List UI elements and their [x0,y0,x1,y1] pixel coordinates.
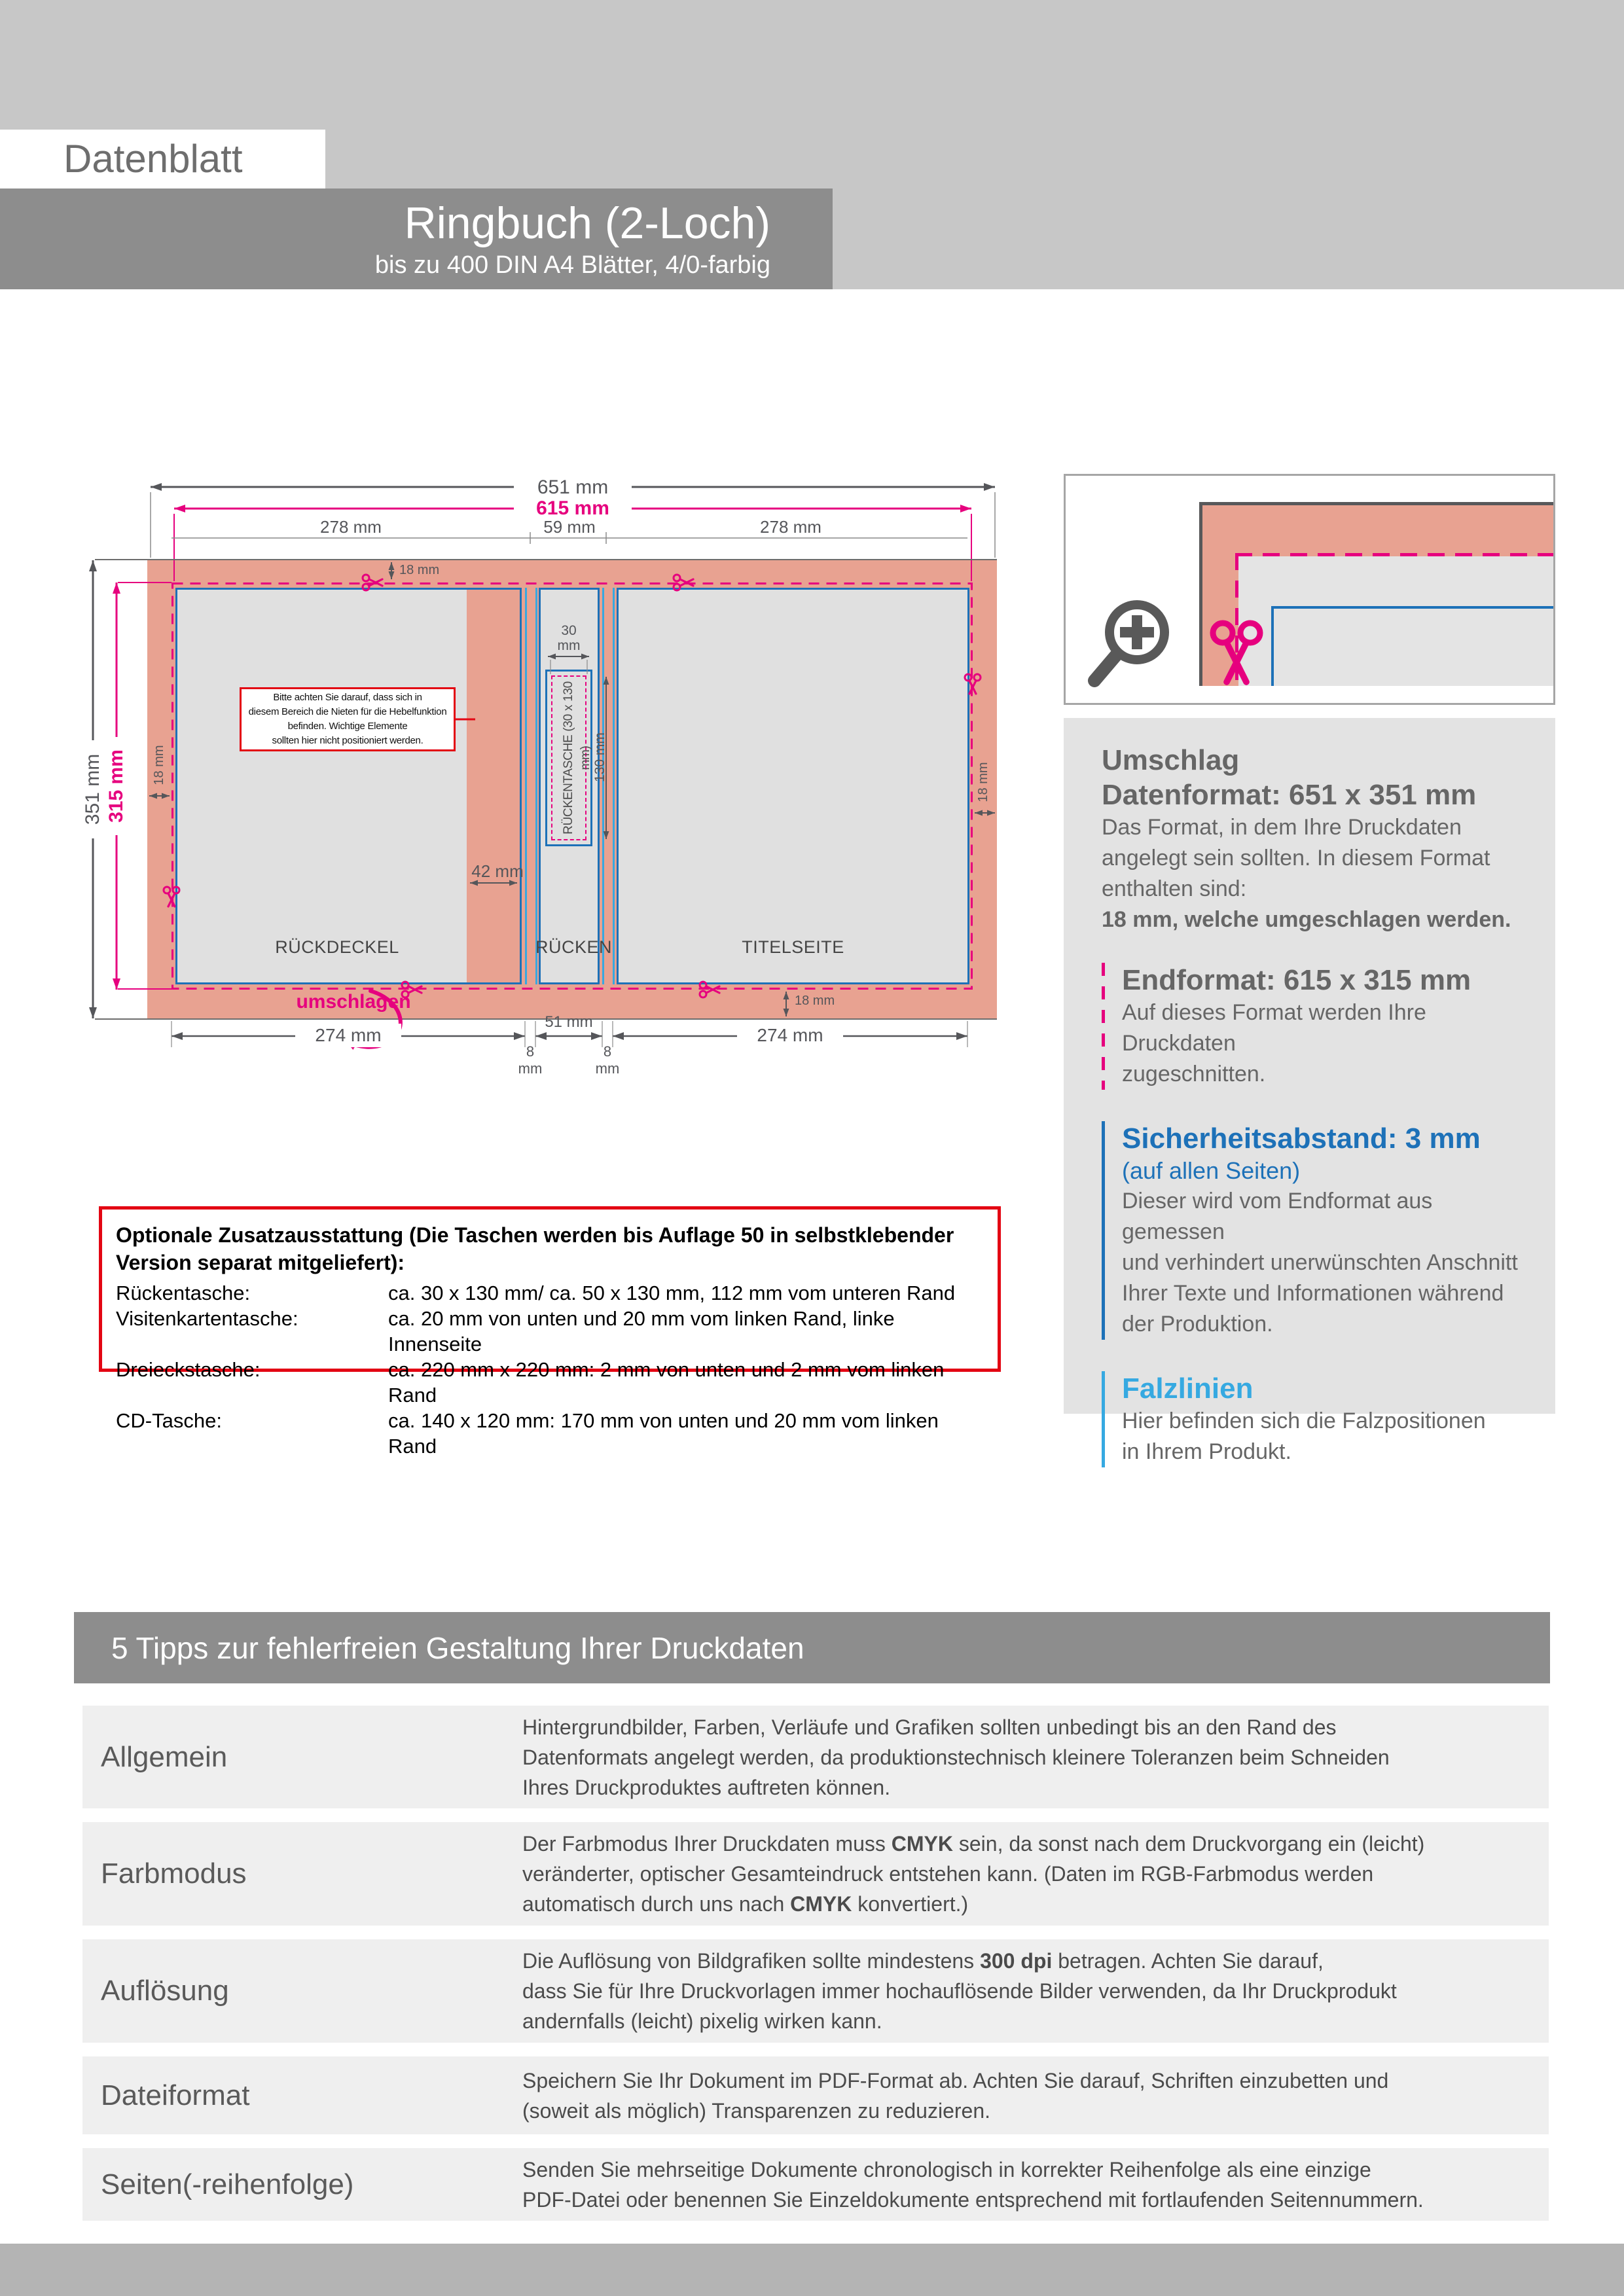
tip-label-dateiformat: Dateiformat [101,2079,249,2112]
page-title: Ringbuch (2-Loch) [405,197,770,249]
datenblatt-strip: Datenblatt [0,130,325,188]
optional-title: Optionale Zusatzausstattung (Die Taschen… [116,1221,983,1276]
tip-text-bold: 300 dpi [980,1949,1052,1973]
footer-band [0,2244,1624,2296]
falzlinien-body: Hier befinden sich die Falzpositionen in… [1122,1406,1486,1467]
sicherheitsabstand-sub: (auf allen Seiten) [1122,1156,1536,1186]
tip-text-segment: Der Farbmodus Ihrer Druckdaten muss [522,1832,892,1856]
endformat-title: Endformat: 615 x 315 mm [1122,963,1536,997]
sicherheitsabstand-bar [1102,1121,1105,1340]
falzlinien-block: Falzlinien Hier befinden sich die Falzpo… [1102,1371,1536,1467]
optional-row-desc: ca. 30 x 130 mm/ ca. 50 x 130 mm, 112 mm… [388,1280,983,1306]
dim-bottom-right: 274 mm [737,1024,843,1047]
tip-text-segment: konvertiert.) [852,1892,968,1916]
dim-bottom-fold-left: 8 mm [514,1043,546,1077]
optional-row-label: Dreieckstasche: [116,1357,388,1408]
umschlag-title: Umschlag [1102,743,1536,778]
dim-flap-top: 18 mm [399,563,465,578]
tips-title: 5 Tipps zur fehlerfreien Gestaltung Ihre… [111,1630,804,1666]
dim-total-height: 351 mm [82,740,104,838]
dim-segment-right: 278 mm [738,517,843,537]
optional-row-label: Visitenkartentasche: [116,1306,388,1357]
tip-row-farbmodus: Farbmodus Der Farbmodus Ihrer Druckdaten… [82,1822,1549,1926]
dim-bottom-spine: 51 mm [535,1013,602,1031]
falzlinien-title: Falzlinien [1122,1371,1486,1406]
datenformat-bold-note: 18 mm, welche umgeschlagen werden. [1102,905,1536,935]
tip-row-dateiformat: Dateiformat Speichern Sie Ihr Dokument i… [82,2056,1549,2134]
dim-pocket-width: 30 mm [545,623,592,653]
endformat-dash-bar [1102,963,1105,1090]
tip-row-aufloesung: Auflösung Die Auflösung von Bildgrafiken… [82,1939,1549,2043]
dim-bottom-fold-right: 8 mm [592,1043,623,1077]
optional-row-desc: ca. 140 x 120 mm: 170 mm von unten und 2… [388,1408,983,1459]
spine-pocket-label: RÜCKENTASCHE (30 x 130 mm) [560,670,577,846]
dim-flap-right: 18 mm [975,756,992,808]
optional-row-desc: ca. 20 mm von unten und 20 mm vom linken… [388,1306,983,1357]
tip-text-allgemein: Hintergrundbilder, Farben, Verläufe und … [522,1712,1529,1803]
falzlinien-bar [1102,1371,1105,1467]
sicherheitsabstand-block: Sicherheitsabstand: 3 mm (auf allen Seit… [1102,1121,1536,1340]
optional-row-label: CD-Tasche: [116,1408,388,1459]
spine-label: RÜCKEN [535,937,603,958]
front-cover-label: TITELSEITE [617,937,969,958]
tip-text-seitenreihenfolge: Senden Sie mehrseitige Dokumente chronol… [522,2155,1529,2215]
optional-row-visitenkartentasche: Visitenkartentasche: ca. 20 mm von unten… [116,1306,983,1357]
dim-end-height: 315 mm [105,737,128,835]
dim-rivet-zone: 42 mm [458,861,537,882]
dim-segment-mid: 59 mm [530,517,609,537]
optional-row-dreieckstasche: Dreieckstasche: ca. 220 mm x 220 mm: 2 m… [116,1357,983,1408]
tip-text-farbmodus: Der Farbmodus Ihrer Druckdaten muss CMYK… [522,1822,1549,1926]
optional-row-desc: ca. 220 mm x 220 mm: 2 mm von unten und … [388,1357,983,1408]
rivet-note-box: Bitte achten Sie darauf, dass sich in di… [240,687,456,751]
optional-row-label: Rückentasche: [116,1280,388,1306]
rivet-zone-stripe [467,590,520,982]
front-cover-panel [617,588,969,984]
sicherheitsabstand-body: Dieser wird vom Endformat aus gemessen u… [1122,1186,1536,1340]
dim-segment-left: 278 mm [298,517,403,537]
dim-flap-left: 18 mm [151,739,168,791]
tip-text-segment: veränderter, optischer Gesamteindruck en… [522,1862,1373,1886]
page-subtitle: bis zu 400 DIN A4 Blätter, 4/0-farbig [375,249,770,281]
endformat-body: Auf dieses Format werden Ihre Druckdaten… [1122,997,1536,1090]
back-cover-label: RÜCKDECKEL [196,937,478,958]
tip-text-segment: betragen. Achten Sie darauf, [1052,1949,1324,1973]
title-band: Ringbuch (2-Loch) bis zu 400 DIN A4 Blät… [0,188,833,289]
tip-label-allgemein: Allgemein [101,1741,227,1774]
optional-row-rueckentasche: Rückentasche: ca. 30 x 130 mm/ ca. 50 x … [116,1280,983,1306]
fold-line-4 [613,588,615,984]
fold-line-2 [535,588,537,984]
sicherheitsabstand-title: Sicherheitsabstand: 3 mm [1122,1121,1536,1156]
datasheet-page: Datenblatt Ringbuch (2-Loch) bis zu 400 … [0,0,1624,2296]
tip-text-bold: CMYK [892,1832,953,1856]
tip-text-segment: andernfalls (leicht) pixelig wirken kann… [522,2009,882,2033]
tip-text-dateiformat: Speichern Sie Ihr Dokument im PDF-Format… [522,2066,1529,2126]
endformat-block: Endformat: 615 x 315 mm Auf dieses Forma… [1102,963,1536,1090]
datenformat-body: Das Format, in dem Ihre Druckdaten angel… [1102,812,1536,905]
fold-over-label: umschlagen [272,991,435,1013]
zoom-illustration-box [1064,474,1555,705]
tip-label-farbmodus: Farbmodus [101,1857,247,1890]
tip-text-segment: dass Sie für Ihre Druckvorlagen immer ho… [522,1979,1397,2003]
tip-text-aufloesung: Die Auflösung von Bildgrafiken sollte mi… [522,1939,1549,2043]
optional-row-cd-tasche: CD-Tasche: ca. 140 x 120 mm: 170 mm von … [116,1408,983,1459]
tip-text-segment: sein, da sonst nach dem Druckvorgang ein… [953,1832,1424,1856]
tips-title-band: 5 Tipps zur fehlerfreien Gestaltung Ihre… [74,1612,1550,1683]
dim-bottom-left: 274 mm [295,1024,401,1047]
datenformat-title: Datenformat: 651 x 351 mm [1102,778,1536,812]
tip-text-bold: CMYK [790,1892,852,1916]
datenblatt-label: Datenblatt [0,130,325,188]
info-panel: Umschlag Datenformat: 651 x 351 mm Das F… [1064,718,1555,1414]
tip-row-allgemein: Allgemein Hintergrundbilder, Farben, Ver… [82,1706,1549,1808]
tip-row-seitenreihenfolge: Seiten(-reihenfolge) Senden Sie mehrseit… [82,2148,1549,2221]
tip-text-segment: automatisch durch uns nach [522,1892,790,1916]
tip-label-seitenreihenfolge: Seiten(-reihenfolge) [101,2168,353,2201]
fold-line-1 [525,588,527,984]
dim-total-width: 651 mm [514,476,632,499]
optional-equipment-box: Optionale Zusatzausstattung (Die Taschen… [99,1206,1001,1372]
tip-label-aufloesung: Auflösung [101,1975,229,2007]
tip-text-segment: Die Auflösung von Bildgrafiken sollte mi… [522,1949,980,1973]
dim-flap-bottom: 18 mm [795,994,860,1009]
mini-product [1238,556,1553,686]
